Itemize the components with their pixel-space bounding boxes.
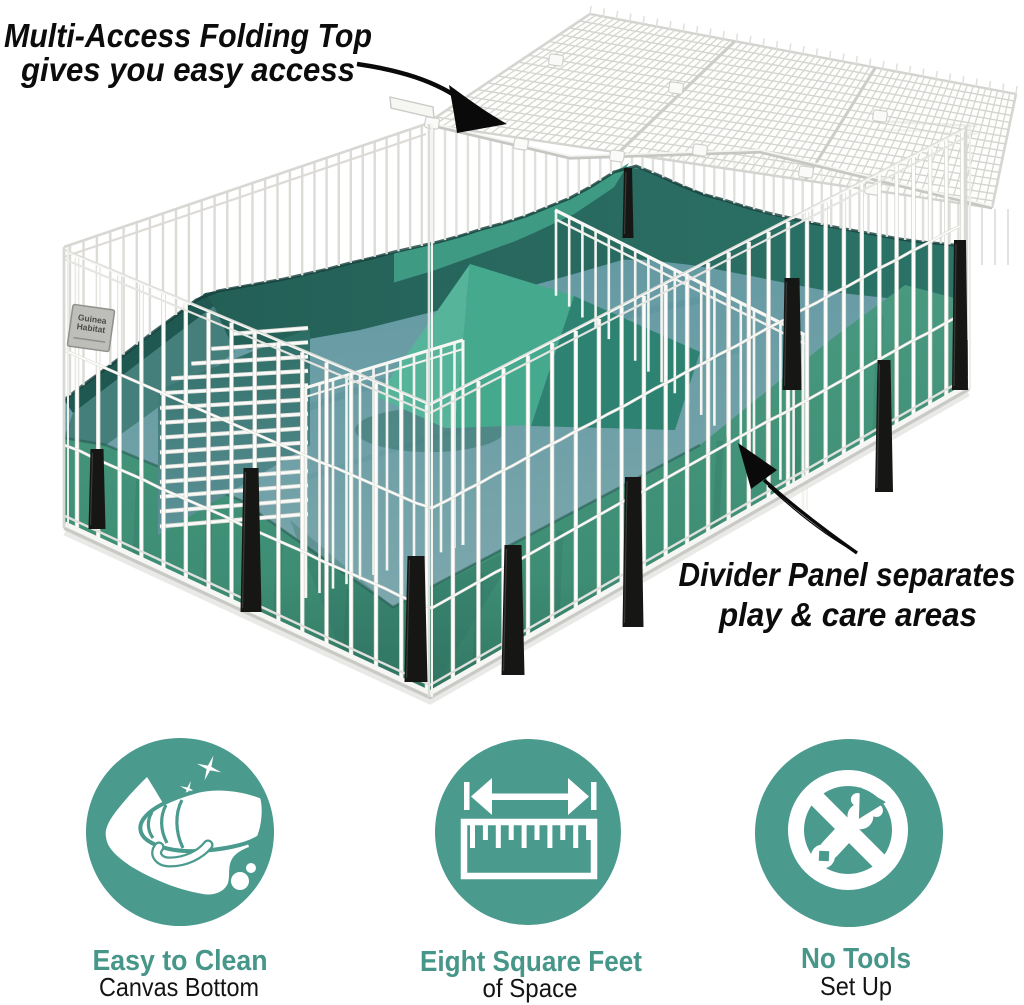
svg-text:Divider Panel separates: Divider Panel separates (679, 556, 1016, 593)
svg-text:Multi-Access Folding Top: Multi-Access Folding Top (4, 17, 372, 54)
svg-text:Canvas Bottom: Canvas Bottom (99, 972, 259, 1002)
svg-text:gives you easy access: gives you easy access (20, 51, 355, 88)
svg-text:of Space: of Space (483, 973, 578, 1003)
svg-text:Set Up: Set Up (820, 971, 892, 1001)
svg-text:play & care areas: play & care areas (718, 596, 977, 633)
